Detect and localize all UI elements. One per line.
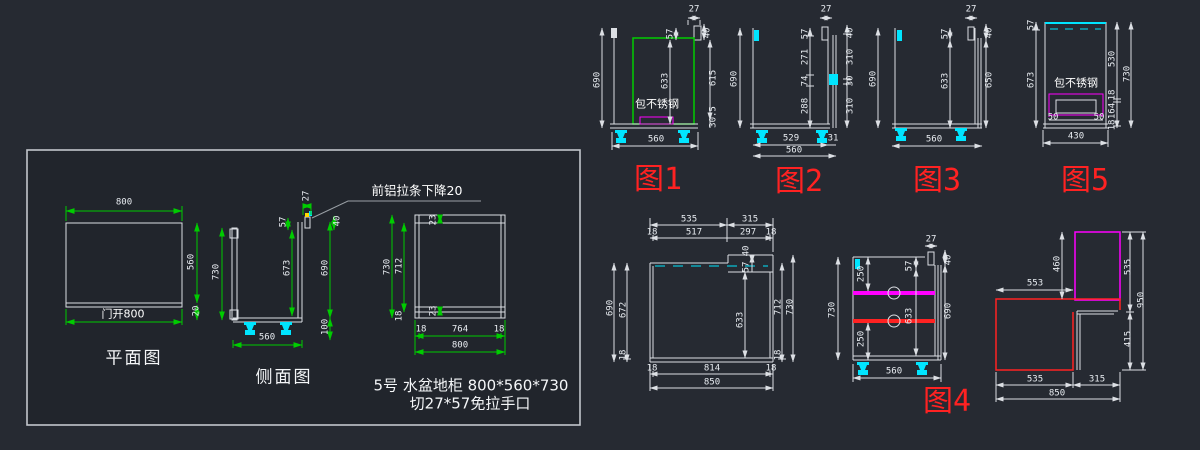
dim-front-total: 800 (452, 342, 468, 351)
dim-fig6-l3: 18 (620, 350, 629, 361)
fig7-linework (996, 232, 1146, 402)
dim-fig1-door: 633 (662, 73, 671, 89)
dim-fig1-height: 690 (594, 72, 603, 88)
dim-front-bl: 18 (416, 326, 427, 335)
dim-fig6-step: 40 (743, 246, 752, 257)
dim-fig5-r3: 164 (1109, 103, 1118, 119)
dim-fig4-cut: 57 (906, 261, 915, 272)
dim-fig2-r2: 30 (847, 76, 856, 87)
dim-front-rail-top: 23 (430, 215, 439, 226)
dim-front-inner: 712 (396, 258, 405, 274)
dim-fig6-b3: 18 (766, 365, 777, 374)
dim-side-cut: 57 (280, 217, 289, 228)
dim-fig7-r3: 415 (1125, 331, 1134, 347)
fig4-label: 图4 (923, 387, 971, 417)
upper-rail-bar (853, 291, 935, 295)
dim-fig2-s2: 74 (802, 76, 811, 87)
dim-fig5-inner: 673 (1028, 72, 1037, 88)
dim-fig6-b1: 18 (647, 365, 658, 374)
dim-fig3-door: 633 (942, 73, 951, 89)
caption-line2: 切27*57免拉手口 (410, 397, 531, 412)
dim-plan-back: 20 (193, 306, 202, 317)
caption-line1: 5号 水盆地柜 800*560*730 (374, 379, 569, 394)
dim-side-inner: 673 (284, 260, 293, 276)
aluminum-strip-highlight (305, 213, 309, 217)
dim-fig6-r3: 18 (775, 350, 784, 361)
dim-fig7-b2: 315 (1089, 376, 1105, 385)
dim-fig3-height: 690 (870, 71, 879, 87)
dim-fig2-width: 560 (786, 147, 802, 156)
dim-fig4-s1: 250 (858, 266, 867, 282)
dim-fig2-s1: 271 (802, 49, 811, 65)
dim-fig1-side: 615 (710, 70, 719, 86)
dim-front-rail-bottom: 23 (430, 306, 439, 317)
dim-fig4-width: 560 (886, 368, 902, 377)
dim-fig7-total: 850 (1049, 390, 1065, 399)
dim-side-body: 690 (322, 260, 331, 276)
dim-fig6-door: 633 (737, 312, 746, 328)
dim-fig2-top: 27 (821, 6, 832, 15)
stainless-wrap-area (640, 117, 673, 124)
dim-fig6-cut: 57 (743, 262, 752, 273)
dim-fig7-v1: 460 (1054, 256, 1063, 272)
dim-fig5-r1: 530 (1109, 51, 1118, 67)
dim-fig6-t1: 535 (681, 216, 697, 225)
dim-fig6-t5: 297 (740, 229, 756, 238)
dim-fig5-r2: 18 (1109, 90, 1118, 101)
fig3-linework (878, 18, 986, 146)
dim-side-height: 730 (213, 264, 222, 280)
dim-fig3-side: 650 (986, 72, 995, 88)
dim-fig5-p1: 50 (1048, 114, 1059, 123)
upstand-outline (1075, 232, 1120, 300)
dim-front-height: 730 (384, 259, 393, 275)
dim-fig5-width: 430 (1068, 133, 1084, 142)
callout-front-rail-note: 前铝拉条下降20 (372, 185, 463, 198)
dim-fig4-s2: 250 (858, 331, 867, 347)
dim-fig2-cut: 57 (802, 29, 811, 40)
dim-fig6-l1: 690 (607, 300, 616, 316)
dim-front-br: 18 (494, 326, 505, 335)
dim-fig6-r1: 712 (775, 299, 784, 315)
dim-plan-width: 800 (116, 199, 132, 208)
dim-fig2-w2: 31 (828, 135, 839, 144)
cad-linework (0, 0, 1200, 450)
dim-side-depth: 560 (259, 334, 275, 343)
dim-fig1-cut: 57 (667, 29, 676, 40)
dim-fig3-cut: 57 (942, 29, 951, 40)
fig2-label: 图2 (775, 167, 823, 197)
dim-fig4-drop: 40 (945, 255, 954, 266)
dim-side-top: 27 (303, 191, 312, 202)
dim-fig6-l2: 672 (620, 302, 629, 318)
dim-fig2-height: 690 (731, 71, 740, 87)
dim-fig1-toe: 30.5 (710, 106, 719, 128)
dim-fig7-h1: 553 (1027, 280, 1043, 289)
dim-fig2-s3: 288 (802, 98, 811, 114)
dim-plan-door-opening: 门开800 (102, 309, 145, 320)
fig1-stainless-note: 包不锈钢 (635, 99, 679, 110)
dim-fig6-t2: 315 (742, 216, 758, 225)
dim-fig5-r4: 18 (1109, 120, 1118, 131)
plan-view-title: 平面图 (106, 351, 163, 368)
dim-fig4-height: 730 (829, 302, 838, 318)
fig1-label: 图1 (634, 165, 682, 195)
dim-fig6-total: 850 (704, 379, 720, 388)
fig1-linework (602, 18, 710, 150)
fig5-stainless-note: 包不锈钢 (1054, 78, 1098, 89)
dim-fig1-top: 27 (689, 6, 700, 15)
dim-front-base: 18 (396, 311, 405, 322)
dim-fig6-t3: 18 (647, 229, 658, 238)
dim-fig2-drop: 40 (847, 28, 856, 39)
dim-front-bm: 764 (452, 326, 468, 335)
dim-fig5-cut: 57 (1028, 20, 1037, 31)
dim-fig5-height: 730 (1124, 66, 1133, 82)
dim-fig3-drop: 40 (986, 28, 995, 39)
side-view-title: 侧面图 (256, 370, 313, 387)
dim-fig1-width: 560 (648, 136, 664, 145)
dim-fig4-door: 633 (906, 308, 915, 324)
dim-fig7-b1: 535 (1027, 376, 1043, 385)
dim-fig6-t4: 517 (686, 229, 702, 238)
dim-fig6-r2: 730 (787, 299, 796, 315)
dim-fig6-t6: 18 (766, 229, 777, 238)
dim-fig3-width: 560 (926, 136, 942, 145)
dim-fig1-drop: 40 (704, 28, 713, 39)
dim-fig3-top: 27 (966, 6, 977, 15)
counter-outline-red (996, 299, 1120, 370)
dim-fig7-r1: 535 (1125, 259, 1134, 275)
dim-fig4-top: 27 (926, 236, 937, 245)
fig4-linework (838, 246, 945, 382)
dim-fig2-r3: 310 (847, 98, 856, 114)
cad-drawing-canvas: 800 560 20 门开800 平面图 27 57 40 730 673 69… (0, 0, 1200, 450)
fig5-label: 图5 (1061, 166, 1109, 196)
fig3-label: 图3 (913, 166, 961, 196)
dim-fig4-side: 690 (945, 303, 954, 319)
dim-fig2-w1: 529 (783, 135, 799, 144)
lower-rail-bar (853, 319, 935, 323)
dim-plan-depth: 560 (188, 254, 197, 270)
dim-side-leg: 100 (322, 319, 331, 335)
dim-fig6-b2: 814 (704, 365, 720, 374)
dim-fig5-p2: 50 (1094, 114, 1105, 123)
dim-fig7-r2: 950 (1138, 292, 1147, 308)
dim-side-drop: 40 (334, 216, 343, 227)
dim-fig2-r1: 310 (847, 49, 856, 65)
